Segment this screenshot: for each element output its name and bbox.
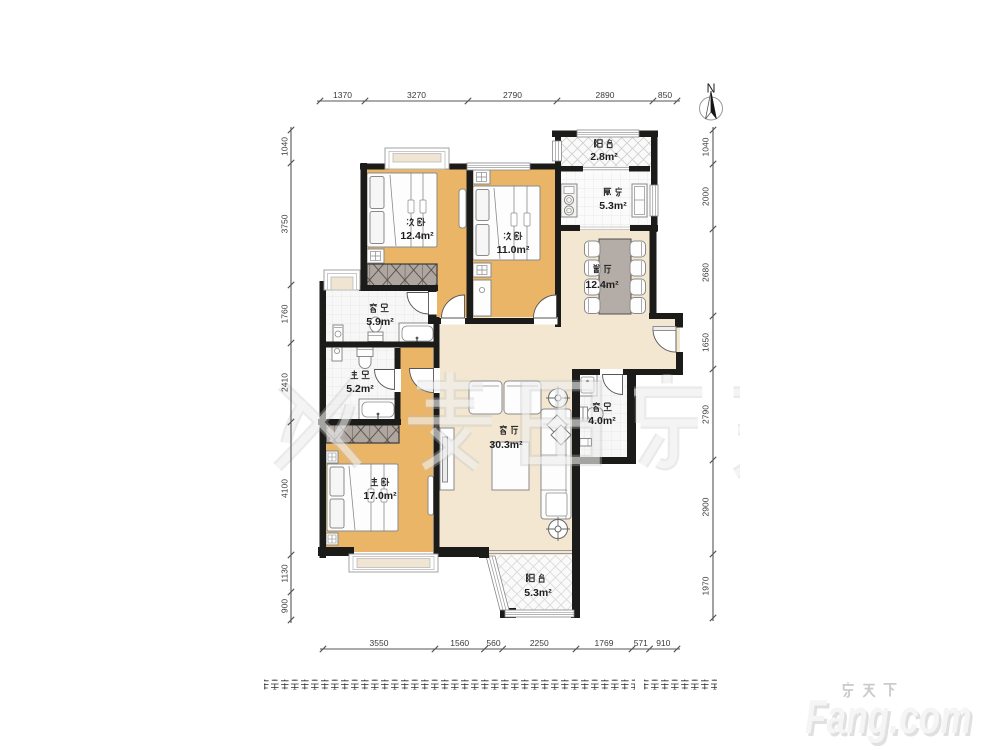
svg-text:4100: 4100 bbox=[280, 479, 290, 498]
svg-text:900: 900 bbox=[280, 599, 290, 613]
svg-text:5.2m²: 5.2m² bbox=[346, 383, 374, 395]
svg-text:12.4m²: 12.4m² bbox=[400, 230, 434, 242]
svg-text:2790: 2790 bbox=[701, 405, 711, 424]
svg-text:Fang.com: Fang.com bbox=[805, 690, 971, 743]
svg-text:2680: 2680 bbox=[701, 263, 711, 282]
svg-text:3750: 3750 bbox=[280, 214, 290, 233]
svg-text:1970: 1970 bbox=[701, 576, 711, 595]
svg-text:1560: 1560 bbox=[450, 638, 469, 648]
svg-text:1040: 1040 bbox=[701, 137, 711, 156]
svg-text:2000: 2000 bbox=[701, 187, 711, 206]
svg-text:11.0m²: 11.0m² bbox=[497, 244, 530, 256]
svg-text:1769: 1769 bbox=[595, 638, 614, 648]
svg-text:2410: 2410 bbox=[280, 373, 290, 392]
svg-text:3270: 3270 bbox=[407, 90, 426, 100]
svg-text:5.3m²: 5.3m² bbox=[524, 587, 552, 599]
svg-text:571: 571 bbox=[634, 638, 648, 648]
svg-text:30.3m²: 30.3m² bbox=[489, 439, 523, 451]
svg-text:1130: 1130 bbox=[280, 564, 290, 583]
svg-text:12.4m²: 12.4m² bbox=[585, 279, 619, 291]
svg-text:3550: 3550 bbox=[370, 638, 389, 648]
svg-text:1370: 1370 bbox=[333, 90, 352, 100]
svg-text:2900: 2900 bbox=[701, 497, 711, 516]
svg-text:N: N bbox=[706, 82, 715, 96]
svg-text:2.8m²: 2.8m² bbox=[590, 151, 618, 163]
svg-text:1650: 1650 bbox=[701, 333, 711, 352]
svg-text:850: 850 bbox=[658, 90, 672, 100]
svg-text:5.9m²: 5.9m² bbox=[366, 316, 394, 328]
svg-text:560: 560 bbox=[486, 638, 500, 648]
svg-text:910: 910 bbox=[656, 638, 670, 648]
svg-text:2790: 2790 bbox=[503, 90, 522, 100]
svg-text:17.0m²: 17.0m² bbox=[363, 490, 397, 502]
svg-text:1760: 1760 bbox=[280, 304, 290, 323]
svg-text:5.3m²: 5.3m² bbox=[599, 200, 627, 212]
svg-text:2250: 2250 bbox=[530, 638, 549, 648]
svg-text:2890: 2890 bbox=[596, 90, 615, 100]
svg-text:1040: 1040 bbox=[280, 137, 290, 156]
svg-text:4.0m²: 4.0m² bbox=[588, 415, 616, 427]
